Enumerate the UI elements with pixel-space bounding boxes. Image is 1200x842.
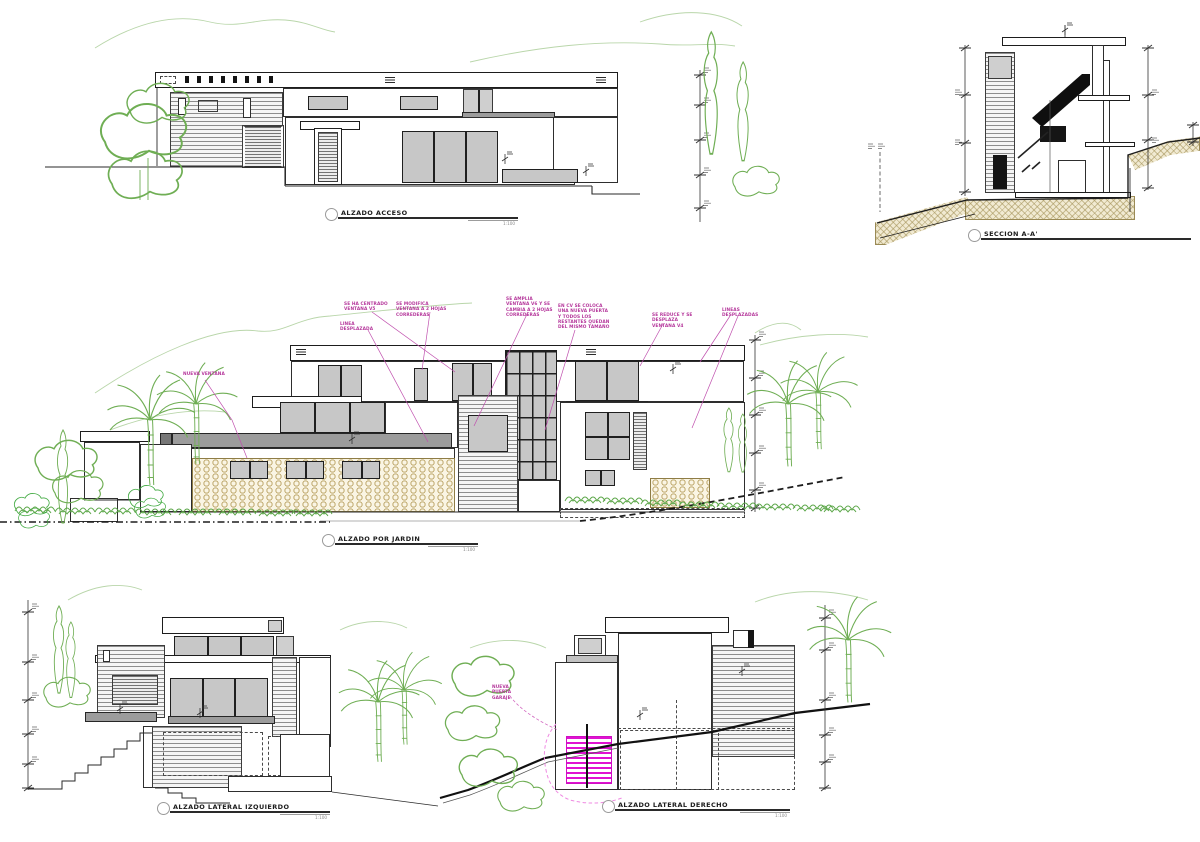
- d4-slat-column: [272, 657, 297, 737]
- d2-right-wall: [1103, 60, 1110, 193]
- d1-title: ALZADO ACCESO: [341, 208, 408, 217]
- d3-dimension-line: [749, 332, 766, 512]
- window-transom: [586, 436, 629, 438]
- d1-wall-recess: [198, 100, 218, 112]
- d3-small-window-pair: [585, 470, 615, 486]
- d4-terrace-slab: [168, 716, 275, 724]
- d1-small-window: [178, 98, 186, 115]
- d3-title: ALZADO POR JARDIN: [338, 534, 420, 543]
- d3-lower-wall: [518, 480, 560, 512]
- d1-scale: 1:100: [503, 221, 515, 226]
- d5-dimension-line: [819, 605, 836, 791]
- d1-garage-door: [243, 126, 283, 167]
- d3-slat-tower: [458, 395, 518, 512]
- d5-clerestory-pane: [578, 638, 602, 654]
- d2-terrain-hatch-left: [875, 195, 975, 245]
- d4-title-block: ALZADO LATERAL IZQUIERDO: [157, 802, 289, 815]
- window-mullion: [606, 362, 608, 400]
- d2-terrain-hatch-center: [965, 196, 1135, 220]
- d5-title-block: ALZADO LATERAL DERECHO: [602, 800, 728, 813]
- title-rule: [338, 217, 518, 219]
- d3-mid-glazing: [280, 402, 385, 433]
- d1-entry-door: [318, 132, 338, 182]
- annotation-cv-nueva-puerta: EN CV SE COLOCA UNA NUEVA PUERTA Y TODOS…: [558, 304, 612, 331]
- d4-clerestory-slab: [162, 617, 284, 634]
- d3-title-block: ALZADO POR JARDIN: [322, 534, 420, 547]
- d5-hidden-line: [618, 728, 795, 729]
- d1-clerestory-window: [257, 76, 261, 83]
- d3-window-v6: [575, 361, 639, 401]
- d1-title-block: ALZADO ACCESO: [325, 208, 408, 221]
- d3-annex-roof: [80, 431, 150, 442]
- d3-slat-strip: [633, 412, 647, 470]
- d2-tower-window: [988, 56, 1012, 79]
- annotation-linea-desplazada: LINEA DESPLAZADA: [340, 322, 382, 333]
- d1-sliding-glazing: [402, 131, 498, 183]
- window-mullion: [478, 90, 480, 114]
- annotation-nueva-ventana: NUEVA VENTANA: [183, 372, 225, 377]
- title-rule: [335, 543, 478, 545]
- d2-base-slab: [1015, 192, 1131, 198]
- window-mullion: [340, 366, 342, 400]
- d3-annex-side-wall: [140, 444, 192, 512]
- title-rule: [981, 238, 1191, 240]
- title-circle: [322, 534, 335, 547]
- d1-upper-window: [308, 96, 348, 110]
- d3-base-window: [342, 461, 380, 479]
- d5-door-centerline: [586, 724, 588, 788]
- d2-tower-door: [993, 155, 1007, 189]
- window-mullion: [305, 462, 307, 478]
- d5-new-garage-door: [566, 736, 612, 784]
- d5-roof-notch-dark: [748, 630, 754, 648]
- d2-roof-slab: [1002, 37, 1126, 46]
- d3-tower-window: [468, 415, 508, 452]
- d3-roof-vent: [586, 349, 596, 355]
- d1-clerestory-window: [221, 76, 225, 83]
- d5-hidden-foundation: [620, 730, 795, 790]
- architectural-drawing-sheet: ALZADO ACCESO 1:100 SECCION A-A' ALZADO …: [0, 0, 1200, 842]
- d2-terrain-hatch-right: [1128, 134, 1200, 178]
- title-circle: [325, 208, 338, 221]
- d5-roof-slab-gray: [566, 655, 618, 663]
- d2-floor-slab: [1078, 95, 1130, 101]
- d4-lower-wall: [280, 734, 330, 778]
- window-mullion: [600, 471, 602, 485]
- title-circle: [968, 229, 981, 242]
- d5-title: ALZADO LATERAL DERECHO: [618, 800, 728, 809]
- d3-hidden-foundation: [560, 508, 745, 518]
- title-rule: [615, 809, 790, 811]
- d4-slat-shutter-window: [112, 675, 158, 705]
- d3-low-garden-wall: [70, 498, 118, 522]
- d2-mid-slab: [1085, 142, 1135, 147]
- annotation-reduce-v4: SE REDUCE Y SE DESPLAZA VENTANA V4: [652, 313, 698, 329]
- annotation-centrado-v5: SE HA CENTRADO VENTANA V5: [344, 302, 388, 313]
- d1-clerestory-window: [185, 76, 189, 83]
- annotation-nueva-puerta-garaje: NUEVA PUERTA GARAJE: [492, 685, 528, 701]
- window-mullion: [433, 132, 435, 182]
- d4-clerestory-box: [268, 620, 282, 632]
- d2-title: SECCION A-A': [984, 229, 1038, 238]
- d4-small-window: [103, 650, 110, 662]
- title-rule: [170, 811, 330, 813]
- d1-upper-window: [400, 96, 438, 110]
- d3-right-window-grid: [585, 412, 630, 460]
- d1-clerestory-window: [269, 76, 273, 83]
- d3-base-window: [230, 461, 268, 479]
- d2-stair-mass: [1040, 126, 1066, 142]
- d4-title: ALZADO LATERAL IZQUIERDO: [173, 802, 289, 811]
- annotation-modifica-ventana: SE MODIFICA VENTANA A 2 HOJAS CORREDERAS: [396, 302, 448, 318]
- d1-roof-vent: [385, 77, 395, 83]
- d3-stone-strip-right: [650, 478, 710, 508]
- d1-clerestory-window: [197, 76, 201, 83]
- window-mullion: [361, 462, 363, 478]
- d3-base-window: [286, 461, 324, 479]
- title-circle: [602, 800, 615, 813]
- d1-clerestory-window: [233, 76, 237, 83]
- d2-title-block: SECCION A-A': [968, 229, 1038, 242]
- d1-small-window: [243, 98, 251, 118]
- d2-interior-door: [1058, 160, 1086, 193]
- d4-dimension-line: [22, 600, 39, 791]
- d3-narrow-window: [414, 368, 428, 401]
- d5-scale: 1:100: [775, 813, 787, 818]
- d1-clerestory-window: [245, 76, 249, 83]
- d1-roof-vent: [596, 77, 606, 83]
- d3-scale: 1:100: [463, 547, 475, 552]
- d1-roof-dashed-detail: [160, 76, 176, 84]
- window-mullion: [349, 403, 351, 432]
- d4-hidden-outline: [163, 732, 263, 776]
- window-mullion: [465, 132, 467, 182]
- annotation-lineas-desplazadas: LINEAS DESPLAZADAS: [722, 308, 770, 319]
- d1-dimension-line: [694, 68, 711, 222]
- annotation-amplia-v6: SE AMPLIA VENTANA V6 Y SE CAMBIA A 2 HOJ…: [506, 297, 554, 318]
- d4-ground-slab: [228, 776, 332, 792]
- d3-annex-wall: [84, 442, 140, 500]
- d3-terrace-slab: [172, 433, 452, 448]
- window-mullion: [314, 403, 316, 432]
- d4-terrace-slab: [85, 712, 157, 722]
- d2-datum-left: [868, 144, 885, 212]
- d3-roof-vent: [296, 349, 306, 355]
- d1-low-window-band: [502, 169, 578, 183]
- window-mullion: [249, 462, 251, 478]
- title-circle: [157, 802, 170, 815]
- d1-clerestory-window: [209, 76, 213, 83]
- d4-scale: 1:100: [315, 815, 327, 820]
- d5-top-slab: [605, 617, 729, 633]
